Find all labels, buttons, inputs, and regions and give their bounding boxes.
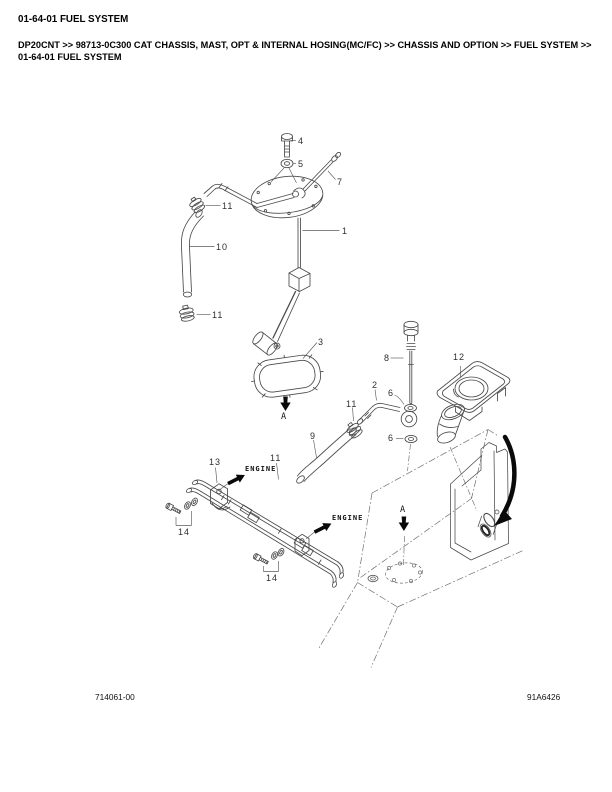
part-callout-9: 9	[310, 431, 316, 441]
part-callout-1: 1	[342, 226, 348, 236]
part-callout-12: 12	[453, 352, 465, 362]
gasket-3	[248, 350, 326, 402]
view-a-arrow-upper-icon	[280, 397, 290, 412]
part-callout-4: 4	[298, 136, 304, 146]
view-a-label-lower: A	[400, 505, 405, 515]
fuel-hose-10	[181, 209, 203, 297]
part-callout-6-a: 6	[388, 388, 394, 398]
bolt-part-4	[282, 134, 293, 158]
sender-unit-1	[251, 218, 310, 357]
part-callout-11-a: 11	[222, 201, 233, 211]
engine-direction-arrow-upper-icon	[226, 471, 247, 488]
tank-small-hole	[368, 575, 378, 581]
view-a-label-upper: A	[281, 412, 286, 422]
pickup-tube	[204, 184, 294, 208]
filler-direction-arrow-icon	[494, 437, 514, 526]
view-a-arrow-lower-icon	[399, 517, 409, 532]
part-callout-14-b: 14	[266, 573, 278, 583]
part-callout-3: 3	[318, 337, 324, 347]
cover-plate-12	[437, 362, 510, 421]
part-callout-7: 7	[337, 177, 343, 187]
parts-catalog-page: 01-64-01 FUEL SYSTEM DP20CNT >> 98713-0C…	[0, 0, 612, 792]
fuel-hose-9	[295, 427, 357, 485]
part-callout-5: 5	[298, 159, 304, 169]
hose-clamp-11-top	[187, 195, 206, 215]
engine-direction-arrow-lower-icon	[312, 519, 333, 536]
rod-part-7	[303, 151, 342, 191]
part-callout-11-b: 11	[212, 310, 223, 320]
drawing-number: 714061-00	[95, 692, 135, 702]
part-callout-2: 2	[372, 380, 378, 390]
part-callout-8: 8	[384, 353, 390, 363]
hose-clamp-11-middle	[344, 420, 364, 440]
engine-direction-label-upper: ENGINE	[245, 465, 276, 473]
hose-clamp-11-bottom	[178, 304, 195, 322]
centerlines	[404, 444, 478, 566]
pipe-bracket-13	[211, 484, 231, 510]
part-callout-10: 10	[216, 242, 228, 252]
part-callout-14-a: 14	[178, 527, 190, 537]
fuel-pipe-2	[356, 403, 417, 427]
bolt-group-14-upper	[165, 497, 199, 515]
filler-neck	[436, 401, 466, 445]
washer-6-lower	[405, 435, 417, 442]
part-callout-13: 13	[209, 457, 221, 467]
fuel-gauge-8	[404, 321, 418, 403]
washer-part-5	[281, 159, 293, 167]
engine-direction-label-lower: ENGINE	[332, 514, 363, 522]
filler-bracket	[451, 443, 509, 561]
tank-sender-hole	[385, 561, 424, 585]
part-callout-11-d: 11	[270, 453, 281, 463]
fuel-tank-phantom-outline	[319, 430, 523, 668]
washer-6-upper	[405, 404, 417, 411]
part-callout-6-b: 6	[388, 433, 394, 443]
bolt-group-14-lower	[253, 547, 286, 565]
sender-plate	[249, 172, 325, 221]
parts-diagram	[0, 0, 612, 792]
part-callout-11-c: 11	[346, 399, 357, 409]
figure-code: 91A6426	[527, 692, 560, 702]
